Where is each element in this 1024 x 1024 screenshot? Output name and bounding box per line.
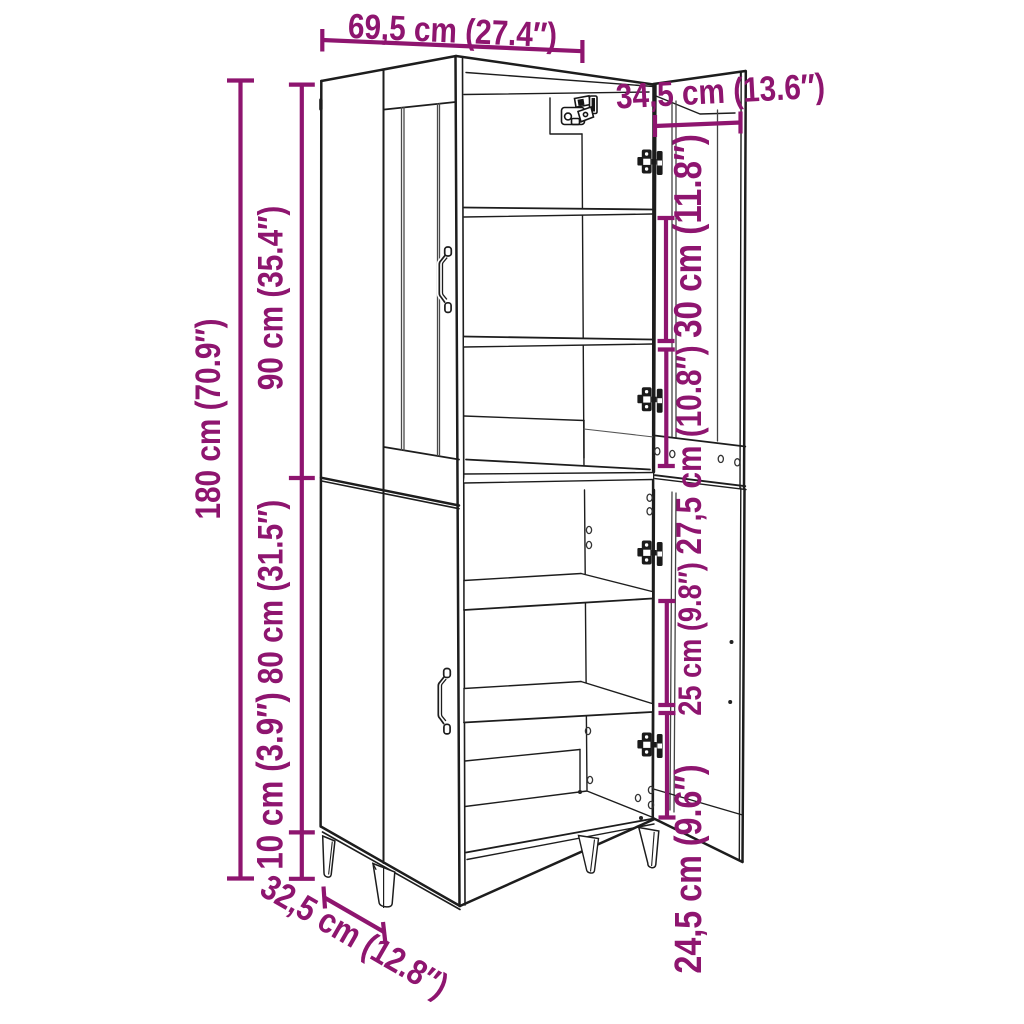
- svg-text:180 cm (70.9″): 180 cm (70.9″): [189, 318, 228, 519]
- svg-text:80 cm (31.5″): 80 cm (31.5″): [251, 500, 290, 685]
- svg-text:10 cm (3.9″): 10 cm (3.9″): [250, 692, 291, 870]
- svg-text:24,5 cm (9.6″): 24,5 cm (9.6″): [668, 764, 710, 973]
- svg-text:30 cm (11.8″): 30 cm (11.8″): [665, 134, 709, 338]
- svg-text:27,5 cm (10.8″): 27,5 cm (10.8″): [670, 345, 709, 554]
- svg-text:25 cm (9.8″): 25 cm (9.8″): [673, 562, 709, 716]
- svg-text:90 cm (35.4″): 90 cm (35.4″): [251, 206, 290, 391]
